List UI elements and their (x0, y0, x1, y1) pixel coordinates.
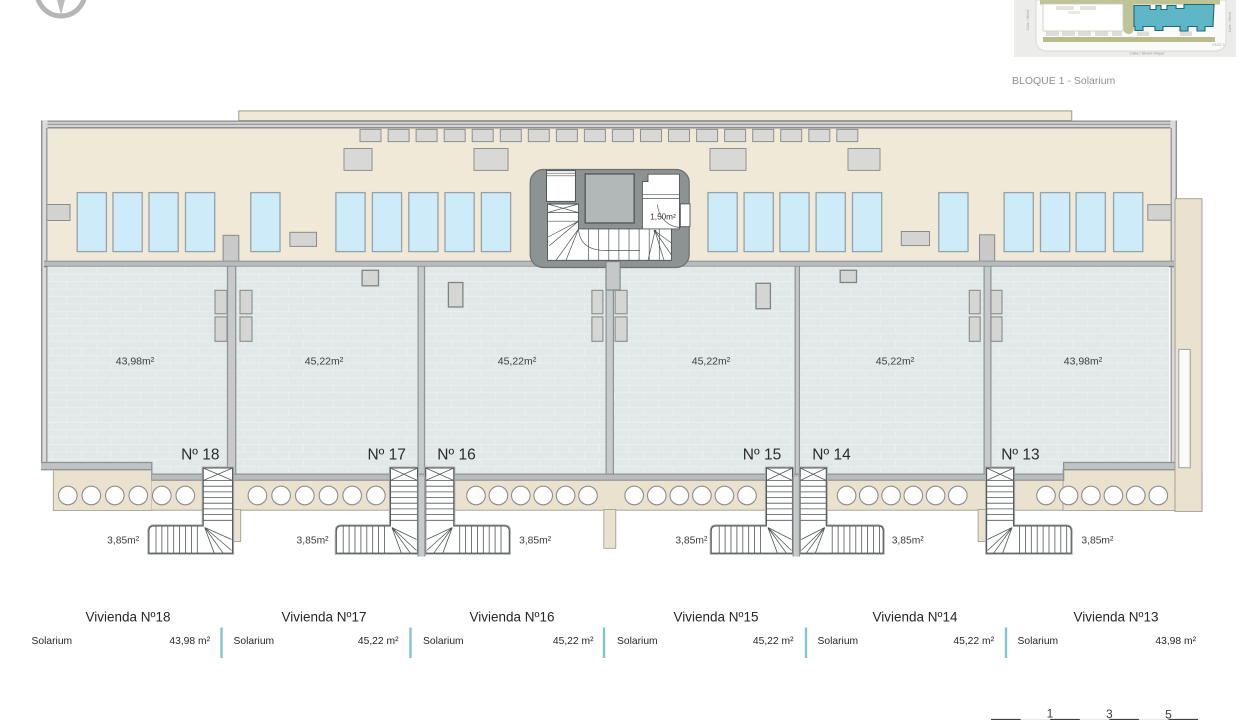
svg-text:Nº 15: Nº 15 (743, 447, 781, 464)
svg-text:Solarium: Solarium (234, 636, 275, 647)
svg-text:3,85m²: 3,85m² (675, 536, 708, 547)
svg-text:Vivienda Nº15: Vivienda Nº15 (674, 610, 759, 625)
svg-text:45,22m²: 45,22m² (692, 356, 731, 368)
svg-text:1: 1 (1047, 707, 1054, 720)
svg-text:45,22m²: 45,22m² (498, 356, 537, 368)
svg-text:43,98m²: 43,98m² (1064, 356, 1103, 368)
svg-text:Nº 18: Nº 18 (181, 447, 219, 464)
svg-text:45,22m²: 45,22m² (305, 356, 344, 368)
svg-text:FASE 1: FASE 1 (1212, 43, 1225, 47)
svg-text:45,22 m²: 45,22 m² (753, 636, 794, 647)
svg-text:Nº 17: Nº 17 (367, 447, 405, 464)
svg-text:Calle / Street: Calle / Street (1228, 12, 1232, 32)
svg-text:45,22m²: 45,22m² (876, 356, 915, 368)
svg-text:Solarium: Solarium (818, 636, 859, 647)
svg-text:3,85m²: 3,85m² (1081, 536, 1114, 547)
svg-text:3,85m²: 3,85m² (107, 536, 140, 547)
svg-text:Solarium: Solarium (617, 636, 658, 647)
svg-text:Vivienda Nº14: Vivienda Nº14 (873, 610, 958, 625)
svg-text:3,85m²: 3,85m² (519, 536, 552, 547)
svg-text:43,98m²: 43,98m² (116, 356, 155, 368)
svg-text:Nº 13: Nº 13 (1001, 447, 1039, 464)
svg-text:43,98 m²: 43,98 m² (1155, 636, 1196, 647)
svg-text:Vivienda Nº18: Vivienda Nº18 (86, 610, 171, 625)
svg-text:3,85m²: 3,85m² (297, 536, 330, 547)
svg-text:3: 3 (1106, 707, 1113, 720)
svg-text:Vivienda Nº16: Vivienda Nº16 (470, 610, 555, 625)
svg-text:43,98 m²: 43,98 m² (169, 636, 210, 647)
svg-text:Calle / Street: Calle / Street (1026, 10, 1030, 30)
svg-text:1,50m²: 1,50m² (650, 213, 676, 222)
svg-text:45,22 m²: 45,22 m² (553, 636, 594, 647)
svg-text:45,22 m²: 45,22 m² (358, 636, 399, 647)
svg-text:5: 5 (1165, 708, 1172, 720)
svg-text:Vivienda Nº17: Vivienda Nº17 (282, 610, 367, 625)
svg-text:BLOQUE 1 - Solarium: BLOQUE 1 - Solarium (1012, 75, 1116, 87)
svg-text:Nº 16: Nº 16 (437, 447, 475, 464)
svg-text:Nº 14: Nº 14 (812, 447, 851, 464)
svg-text:3,85m²: 3,85m² (892, 536, 925, 547)
svg-text:Solarium: Solarium (423, 636, 464, 647)
svg-text:Vivienda Nº13: Vivienda Nº13 (1074, 610, 1159, 625)
svg-text:Calle / Street Mayor: Calle / Street Mayor (1129, 51, 1165, 56)
svg-text:45,22 m²: 45,22 m² (953, 636, 994, 647)
svg-text:Solarium: Solarium (1018, 636, 1059, 647)
svg-text:Solarium: Solarium (32, 636, 73, 647)
